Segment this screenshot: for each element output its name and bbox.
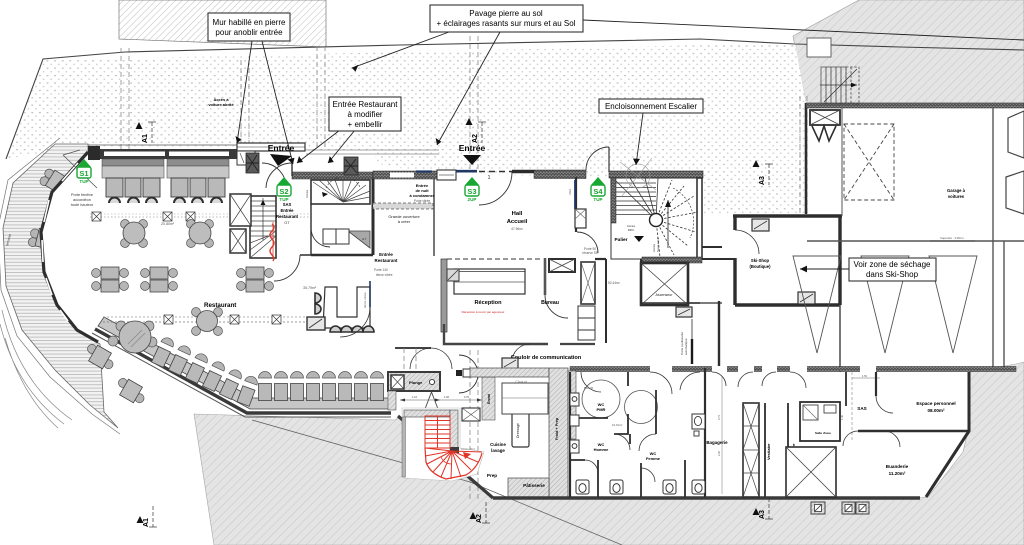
- svg-text:(Boutique): (Boutique): [750, 264, 772, 269]
- svg-text:Restaurant: Restaurant: [375, 258, 398, 263]
- svg-text:toute hauteur: toute hauteur: [71, 203, 94, 207]
- svg-text:Homme: Homme: [594, 447, 609, 452]
- svg-text:S2: S2: [279, 187, 288, 196]
- svg-text:Réception à revoir par agenceu: Réception à revoir par agenceur: [462, 310, 505, 314]
- svg-text:dans Ski-Shop: dans Ski-Shop: [866, 270, 919, 279]
- svg-text:Accueil: Accueil: [507, 219, 528, 225]
- svg-text:Entrée: Entrée: [459, 143, 486, 153]
- svg-text:Vitré: Vitré: [568, 189, 572, 195]
- svg-text:1.40: 1.40: [840, 414, 844, 420]
- svg-text:1.10: 1.10: [412, 395, 418, 399]
- svg-text:Porte vitrée: Porte vitrée: [414, 199, 431, 203]
- svg-text:Sous-sol-2: Sous-sol-2: [656, 237, 660, 252]
- svg-text:Pâtisserie: Pâtisserie: [523, 483, 545, 488]
- svg-text:2UP: 2UP: [468, 197, 477, 202]
- svg-text:BxH 30: BxH 30: [584, 386, 594, 390]
- svg-text:Prep: Prep: [487, 473, 497, 478]
- svg-text:voiture abrité: voiture abrité: [208, 102, 234, 107]
- svg-text:Entrée: Entrée: [280, 208, 294, 213]
- svg-text:Porte 140: Porte 140: [374, 268, 388, 272]
- svg-text:Palier: Palier: [614, 237, 627, 243]
- svg-text:Garage à: Garage à: [947, 188, 966, 193]
- svg-text:Encloisonnement Escalier: Encloisonnement Escalier: [605, 102, 697, 111]
- svg-text:à modifier: à modifier: [347, 110, 382, 119]
- svg-text:TUP: TUP: [279, 197, 288, 202]
- svg-text:tierce vitrée: tierce vitrée: [363, 292, 367, 308]
- svg-text:52.44m²: 52.44m²: [608, 281, 620, 285]
- svg-text:réserve S5: réserve S5: [582, 251, 598, 255]
- svg-text:Accès RDJ: Accès RDJ: [461, 447, 475, 451]
- svg-text:A1: A1: [142, 134, 149, 143]
- svg-text:TUP: TUP: [79, 179, 88, 184]
- svg-text:SAS: SAS: [857, 406, 866, 411]
- svg-text:19.01m²: 19.01m²: [612, 423, 622, 427]
- svg-text:A2: A2: [476, 514, 483, 523]
- svg-text:11.20m²: 11.20m²: [889, 471, 906, 476]
- svg-text:Plonge: Plonge: [409, 380, 423, 385]
- svg-text:20.80m²: 20.80m²: [161, 222, 175, 226]
- svg-text:tierce vitrée: tierce vitrée: [376, 273, 393, 277]
- svg-text:Envoi: Envoi: [487, 394, 491, 404]
- svg-text:Salle d'eau: Salle d'eau: [815, 431, 831, 435]
- svg-text:Ski-Shop: Ski-Shop: [751, 258, 770, 263]
- svg-text:Voir zone de séchage: Voir zone de séchage: [854, 260, 931, 269]
- svg-text:A2: A2: [472, 134, 479, 143]
- svg-text:Vestiaire: Vestiaire: [766, 443, 771, 460]
- svg-text:Entrée: Entrée: [268, 143, 295, 153]
- svg-text:Porte fenêtre: Porte fenêtre: [71, 193, 93, 197]
- svg-text:Pavage pierre au sol: Pavage pierre au sol: [469, 9, 543, 18]
- svg-text:Bureau: Bureau: [541, 300, 559, 306]
- svg-text:Dressage: Dressage: [516, 423, 520, 438]
- svg-text:Restaurant: Restaurant: [276, 214, 298, 219]
- svg-text:Femme: Femme: [646, 456, 661, 461]
- svg-text:à condamner: à condamner: [410, 193, 435, 198]
- svg-text:GT: GT: [362, 237, 366, 241]
- svg-text:35.79m²: 35.79m²: [303, 286, 317, 290]
- svg-text:Couloir de communication: Couloir de communication: [511, 355, 582, 361]
- svg-text:Entrée Restaurant: Entrée Restaurant: [333, 100, 399, 109]
- svg-text:+ éclairages rasants sur murs: + éclairages rasants sur murs et au Sol: [437, 19, 576, 28]
- svg-text:SAS: SAS: [283, 202, 292, 207]
- svg-text:A1: A1: [143, 518, 150, 527]
- svg-text:lavage: lavage: [491, 448, 505, 453]
- svg-text:voitures: voitures: [948, 194, 965, 199]
- svg-text:S4: S4: [593, 187, 603, 196]
- svg-text:TUP: TUP: [593, 197, 602, 202]
- svg-text:Réception: Réception: [474, 300, 502, 306]
- svg-text:3.75: 3.75: [717, 414, 721, 420]
- svg-text:à créer: à créer: [398, 219, 411, 224]
- svg-text:Hall: Hall: [512, 211, 523, 217]
- svg-text:S1: S1: [79, 169, 88, 178]
- svg-text:accordéon: accordéon: [73, 198, 91, 202]
- svg-text:47.96m²: 47.96m²: [511, 227, 523, 231]
- svg-text:0.70: 0.70: [464, 395, 470, 399]
- svg-text:Espace personnel: Espace personnel: [916, 401, 955, 406]
- svg-text:Cuisine: Cuisine: [490, 442, 506, 447]
- svg-text:RDC: RDC: [628, 228, 635, 232]
- svg-text:+ embellir: + embellir: [348, 120, 383, 129]
- svg-text:Bagagerie: Bagagerie: [706, 440, 728, 445]
- svg-text:A3: A3: [759, 176, 766, 185]
- svg-text:S3: S3: [467, 187, 476, 196]
- svg-text:automatique: automatique: [684, 338, 688, 355]
- svg-text:pour anoblir entrée: pour anoblir entrée: [215, 28, 283, 37]
- svg-text:hapoutre : 215cm: hapoutre : 215cm: [940, 236, 964, 240]
- svg-text:Buanderie: Buanderie: [886, 464, 909, 469]
- svg-text:08.00m²: 08.00m²: [927, 408, 945, 413]
- svg-text:Froid + Prep: Froid + Prep: [555, 417, 559, 440]
- svg-text:Ascenseur: Ascenseur: [656, 293, 674, 297]
- svg-text:2.00: 2.00: [717, 450, 721, 456]
- svg-text:PMR: PMR: [597, 407, 606, 412]
- svg-text:A3: A3: [759, 510, 766, 519]
- svg-text:Entrée: Entrée: [379, 252, 393, 257]
- svg-text:Accès: Accès: [305, 189, 309, 198]
- svg-text:Mur habillé en pierre: Mur habillé en pierre: [213, 18, 286, 27]
- svg-text:1.50: 1.50: [862, 374, 868, 378]
- svg-text:1: 1: [487, 175, 490, 181]
- svg-text:GT: GT: [284, 220, 290, 225]
- svg-text:1.00: 1.00: [444, 395, 450, 399]
